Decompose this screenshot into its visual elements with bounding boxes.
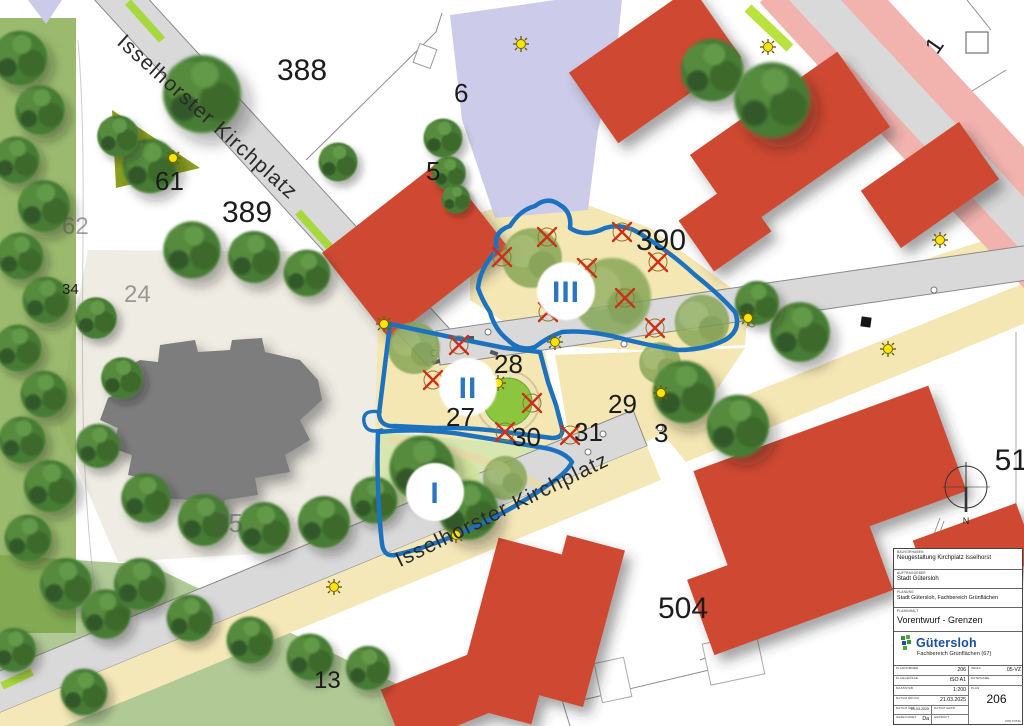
compass-north-label: N <box>963 516 970 526</box>
field-datum-gepr: DATUM GEPR. <box>932 706 969 715</box>
title-block-project: BAUVORHABEN Neugestaltung Kirchplatz Iss… <box>894 549 1022 570</box>
region-marker-II: II <box>459 372 478 405</box>
parcel-390: 390 <box>636 224 686 257</box>
region-marker-III: III <box>552 276 580 309</box>
parcel-27: 27 <box>446 402 475 432</box>
field-datum-druck: DATUM DRUCK 21.03.2025 <box>894 696 969 706</box>
parcel-61: 61 <box>155 166 184 196</box>
guetersloh-logo: Gütersloh Fachbereich Grünflächen (67) <box>894 632 1022 666</box>
client-label: AUFTRAGGEBER <box>897 571 1019 575</box>
parcel-51: 51 <box>995 444 1024 477</box>
field-datum-gez: DATUM GEZ. 21.03.2025 <box>894 706 932 715</box>
parcel-34: 34 <box>62 281 79 298</box>
title-block: BAUVORHABEN Neugestaltung Kirchplatz Iss… <box>893 548 1023 725</box>
black-marker <box>860 316 871 327</box>
plan-number-big: 206 <box>970 685 1023 713</box>
project-label: BAUVORHABEN <box>897 550 1019 554</box>
guetersloh-wordmark: Gütersloh <box>916 636 977 650</box>
field-index: INDEX 05-VZ <box>969 666 1023 676</box>
project-value: Neugestaltung Kirchplatz Isselhorst <box>897 555 1019 561</box>
parcel-62: 62 <box>62 213 89 240</box>
von-total-label: VON TOTAL <box>1005 719 1021 723</box>
parcel-28: 28 <box>494 349 523 379</box>
region-marker-I: I <box>430 477 439 510</box>
parcel-31: 31 <box>574 417 603 447</box>
content-value: Vorentwurf - Grenzen <box>897 615 1019 625</box>
guetersloh-department: Fachbereich Grünflächen (67) <box>917 651 1019 657</box>
title-block-content: PLANINHALT Vorentwurf - Grenzen <box>894 608 1022 632</box>
parcel-25: 25 <box>214 508 243 538</box>
field-gezeichnet: GEZEICHNET Da <box>894 715 932 724</box>
field-geprueft: GEPRÜFT <box>932 715 969 724</box>
parcel-6: 6 <box>454 78 468 108</box>
parcel-504: 504 <box>658 592 708 625</box>
client-value: Stadt Gütersloh <box>897 576 1019 582</box>
parcel-13: 13 <box>314 667 341 694</box>
planner-label: PLANUNG <box>897 590 1019 594</box>
parcel-5: 5 <box>426 156 440 186</box>
parcel-30: 30 <box>512 422 541 452</box>
planner-value: Stadt Gütersloh, Fachbereich Grünflächen <box>897 595 1019 601</box>
parcel-3: 3 <box>654 418 668 448</box>
parcel-388: 388 <box>277 54 327 87</box>
title-block-client: AUFTRAGGEBER Stadt Gütersloh <box>894 570 1022 589</box>
parcel-24: 24 <box>124 281 151 308</box>
guetersloh-logo-icon <box>900 635 913 650</box>
parcel-29: 29 <box>608 389 637 419</box>
field-massstab: MASSSTAB 1:200 <box>894 686 969 696</box>
field-plangroesse: PLANGRÖSSE ISO A1 <box>894 676 969 686</box>
title-block-fields: PLANNUMMER 206 INDEX 05-VZ PLANGRÖSSE IS… <box>894 666 1022 724</box>
content-label: PLANINHALT <box>897 609 1019 613</box>
title-block-planner: PLANUNG Stadt Gütersloh, Fachbereich Grü… <box>894 589 1022 608</box>
site-plan-map: I II III Isselhorster Kirchplatz Isselho… <box>0 0 1024 726</box>
parcel-389: 389 <box>222 196 272 229</box>
plan-sheet: I II III Isselhorster Kirchplatz Isselho… <box>0 0 1024 726</box>
field-plannummer: PLANNUMMER 206 <box>894 666 969 676</box>
